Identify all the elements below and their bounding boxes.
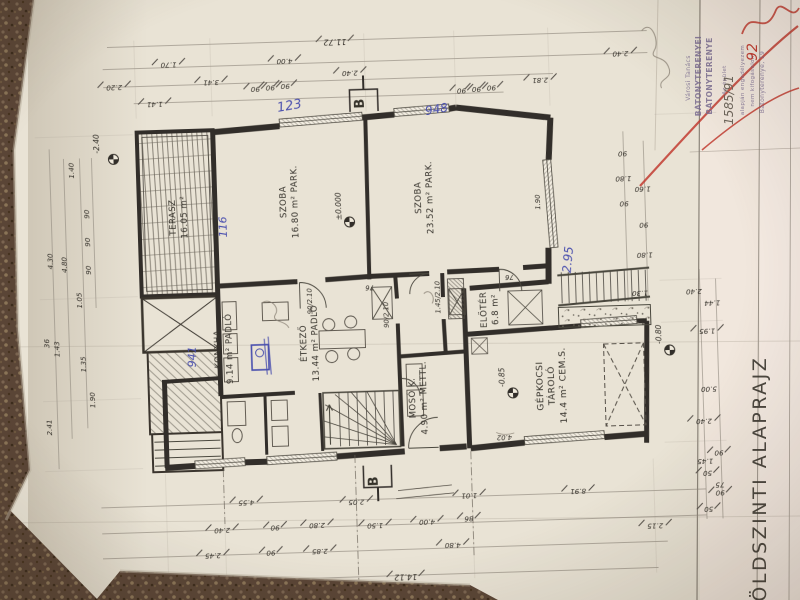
floor-plan-photo: 11.721.704.002.402.402.203.419090902.811… [0,0,800,600]
photo-vignette [0,0,800,600]
floor-plan-svg: 11.721.704.002.402.402.203.419090902.811… [0,0,800,600]
